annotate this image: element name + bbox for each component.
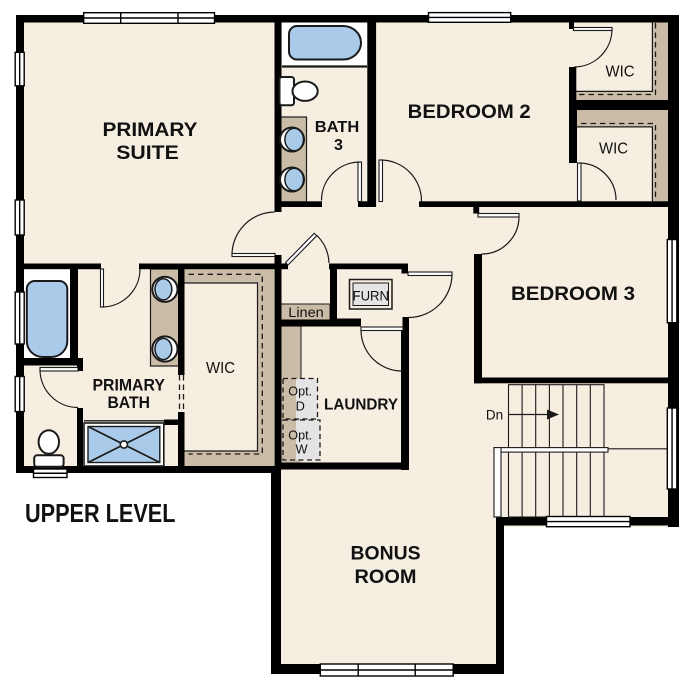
svg-text:D: D — [296, 398, 305, 413]
svg-text:WIC: WIC — [206, 360, 235, 377]
svg-text:Linen: Linen — [288, 305, 324, 320]
svg-text:PRIMARY: PRIMARY — [103, 120, 198, 141]
svg-text:3: 3 — [334, 137, 343, 154]
svg-text:PRIMARY: PRIMARY — [92, 377, 165, 395]
svg-text:BEDROOM 3: BEDROOM 3 — [511, 283, 635, 305]
svg-text:BATH: BATH — [107, 394, 150, 412]
svg-text:W: W — [296, 441, 309, 456]
svg-text:ROOM: ROOM — [355, 567, 417, 588]
svg-text:BONUS: BONUS — [351, 544, 421, 565]
svg-text:WIC: WIC — [606, 63, 635, 80]
svg-text:BATH: BATH — [315, 119, 360, 136]
svg-text:FURN: FURN — [353, 288, 390, 304]
svg-text:UPPER LEVEL: UPPER LEVEL — [25, 498, 176, 528]
svg-text:LAUNDRY: LAUNDRY — [324, 396, 399, 413]
svg-text:WIC: WIC — [599, 141, 628, 158]
svg-text:Opt.: Opt. — [288, 427, 312, 442]
svg-text:Dn: Dn — [486, 407, 503, 423]
svg-text:Opt.: Opt. — [288, 383, 312, 398]
svg-text:SUITE: SUITE — [116, 143, 179, 164]
svg-text:BEDROOM 2: BEDROOM 2 — [408, 101, 531, 123]
